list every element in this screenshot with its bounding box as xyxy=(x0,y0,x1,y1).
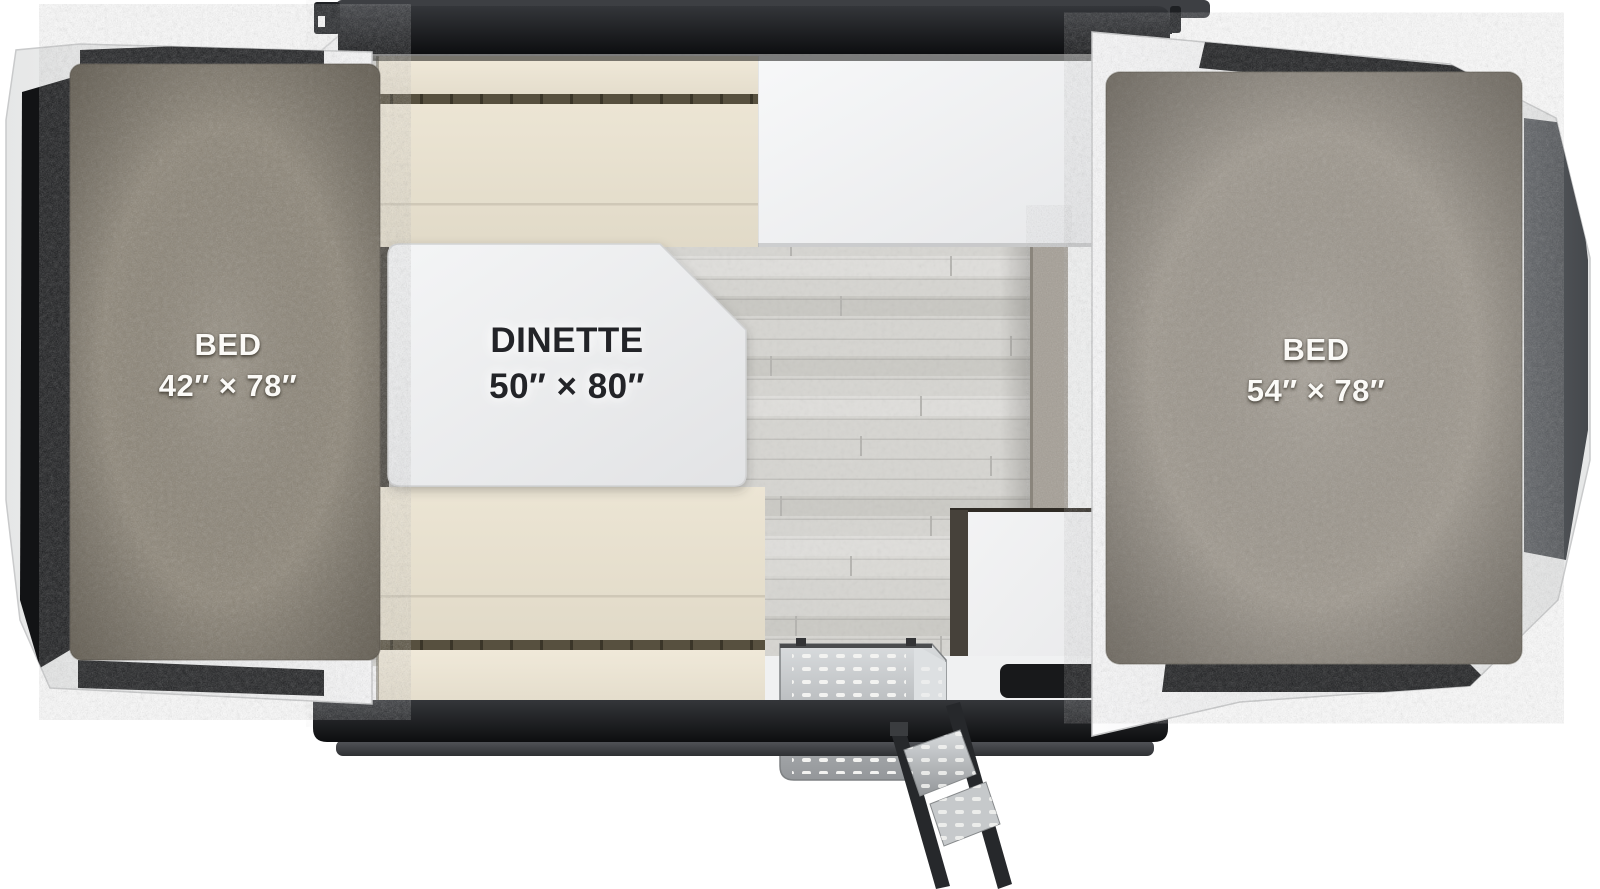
top-trim-rail xyxy=(314,0,1210,54)
floorplan-canvas: BED 42″ × 78″ DINETTE 50″ × 80″ BED 54″ … xyxy=(0,0,1600,889)
dinette-seat-bottom xyxy=(376,487,765,702)
right-bed-label: BED 54″ × 78″ xyxy=(1247,330,1386,412)
left-bed-window-side xyxy=(20,78,70,668)
right-bed-name: BED xyxy=(1247,330,1386,371)
dinette-name: DINETTE xyxy=(489,318,645,364)
dinette-label: DINETTE 50″ × 80″ xyxy=(489,318,645,410)
roof-bracket-left xyxy=(314,2,340,34)
left-bed-label: BED 42″ × 78″ xyxy=(159,325,298,407)
bottom-trim-rail xyxy=(313,700,1168,756)
right-bed-dimensions: 54″ × 78″ xyxy=(1247,371,1386,412)
entry-mat xyxy=(1000,664,1098,698)
floorplan-graphic xyxy=(0,0,1600,889)
dinette-seat-top xyxy=(376,56,758,247)
dinette-dimensions: 50″ × 80″ xyxy=(489,364,645,410)
cabinet xyxy=(950,508,1108,672)
kitchen-counter xyxy=(755,56,1103,247)
right-bed-window-bottom xyxy=(1162,660,1498,692)
left-bed-dimensions: 42″ × 78″ xyxy=(159,366,298,407)
left-bed-name: BED xyxy=(159,325,298,366)
